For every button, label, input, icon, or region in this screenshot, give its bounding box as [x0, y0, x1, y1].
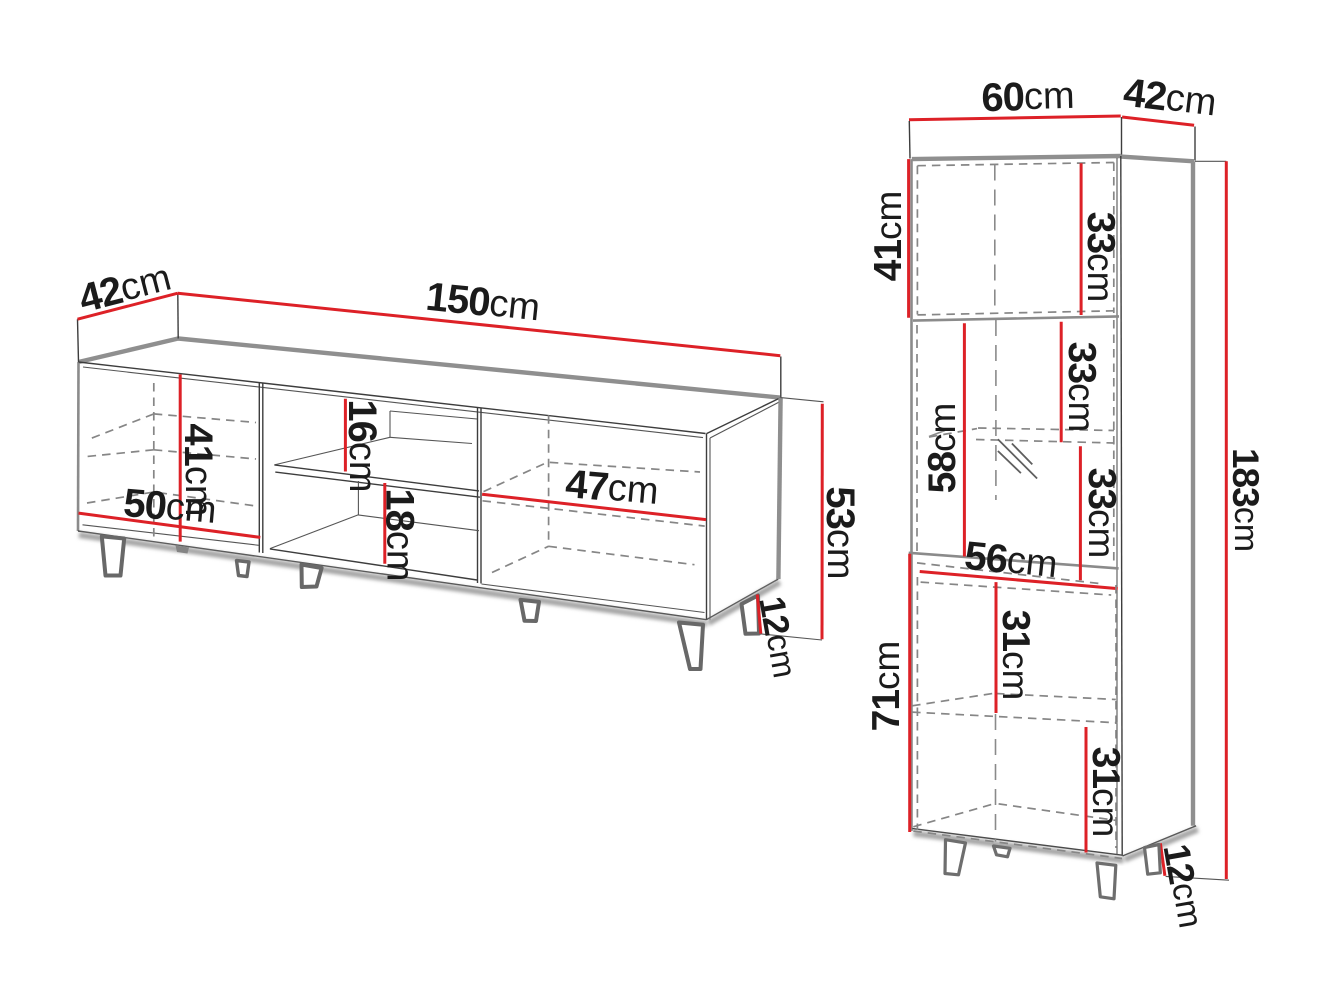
- svg-text:47cm: 47cm: [564, 462, 661, 514]
- svg-text:71cm: 71cm: [865, 641, 908, 732]
- svg-text:58cm: 58cm: [921, 403, 964, 494]
- svg-text:41cm: 41cm: [867, 191, 910, 282]
- svg-text:33cm: 33cm: [1081, 468, 1124, 559]
- svg-text:50cm: 50cm: [122, 481, 219, 533]
- svg-text:53cm: 53cm: [818, 486, 862, 579]
- svg-text:31cm: 31cm: [995, 610, 1038, 701]
- svg-text:60cm: 60cm: [981, 74, 1075, 120]
- svg-text:16cm: 16cm: [340, 399, 384, 492]
- svg-text:183cm: 183cm: [1226, 448, 1267, 552]
- svg-text:31cm: 31cm: [1085, 747, 1128, 838]
- svg-text:33cm: 33cm: [1080, 212, 1123, 303]
- svg-text:33cm: 33cm: [1061, 342, 1104, 433]
- svg-text:18cm: 18cm: [378, 488, 422, 581]
